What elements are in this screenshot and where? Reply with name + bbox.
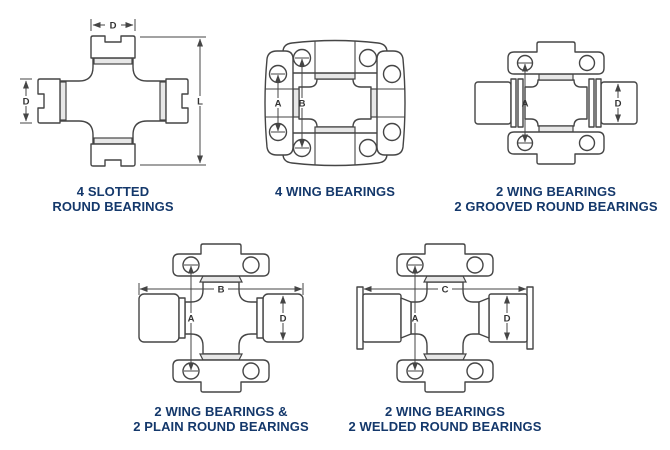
cross-body [60,58,166,144]
cross-body [525,80,587,126]
dimension-label-d: D [280,314,287,325]
diagram-2-wing-2-grooved: A D 2 WING BEARINGS 2 GROOVED ROUND BEAR… [451,6,661,214]
joint-drawing-4-slotted: D D L [8,6,218,178]
joint-drawing-2-wing-2-plain: B A D [115,232,327,398]
diagram-caption: 2 WING BEARINGS 2 GROOVED ROUND BEARINGS [451,184,661,214]
joint-drawing-2-wing-2-grooved: A D [451,6,661,178]
dimension-label-d: D [615,99,622,110]
caption-line-1: 2 WING BEARINGS [339,404,551,419]
dimension-label-a: A [275,99,282,110]
dimension-label-d-top: D [110,21,117,32]
caption-line-2: 2 PLAIN ROUND BEARINGS [115,419,327,434]
dimension-label-a: A [522,99,529,110]
diagram-2-wing-2-welded: C A D 2 WING BEARINGS 2 WELDED ROUND BEA… [339,232,551,434]
dimension-label-d: D [504,314,511,325]
diagram-4-slotted-round-bearings: D D L 4 SLOTTED ROUND BEARINGS [8,6,218,214]
caption-line-2: 2 GROOVED ROUND BEARINGS [451,199,661,214]
diagram-4-wing-bearings: A B 4 WING BEARINGS [230,6,440,199]
caption-line-2: 2 WELDED ROUND BEARINGS [339,419,551,434]
caption-line-1: 4 SLOTTED [8,184,218,199]
joint-drawing-4-wing: A B [230,6,440,178]
diagram-caption: 2 WING BEARINGS & 2 PLAIN ROUND BEARINGS [115,404,327,434]
dimension-label-b: B [218,285,225,296]
dimension-label-d-left: D [23,97,30,108]
dimension-label-l-right: L [197,97,203,108]
dimension-label-a: A [188,314,195,325]
caption-line-2: ROUND BEARINGS [8,199,218,214]
diagram-caption: 4 SLOTTED ROUND BEARINGS [8,184,218,214]
diagram-caption: 2 WING BEARINGS 2 WELDED ROUND BEARINGS [339,404,551,434]
dimension-label-c: C [442,285,449,296]
caption-line-1: 2 WING BEARINGS [451,184,661,199]
caption-line-1: 2 WING BEARINGS & [115,404,327,419]
dimension-left-diameter: D [20,79,32,123]
dimension-top-width: D [91,19,135,32]
dimension-label-a: A [412,314,419,325]
diagram-caption: 4 WING BEARINGS [230,184,440,199]
caption-line-1: 4 WING BEARINGS [230,184,440,199]
joint-drawing-2-wing-2-welded: C A D [339,232,551,398]
dimension-label-b: B [299,99,306,110]
diagram-2-wing-2-plain: B A D 2 WING BEARINGS & 2 PLAIN ROUND BE… [115,232,327,434]
cross-body [299,79,371,127]
